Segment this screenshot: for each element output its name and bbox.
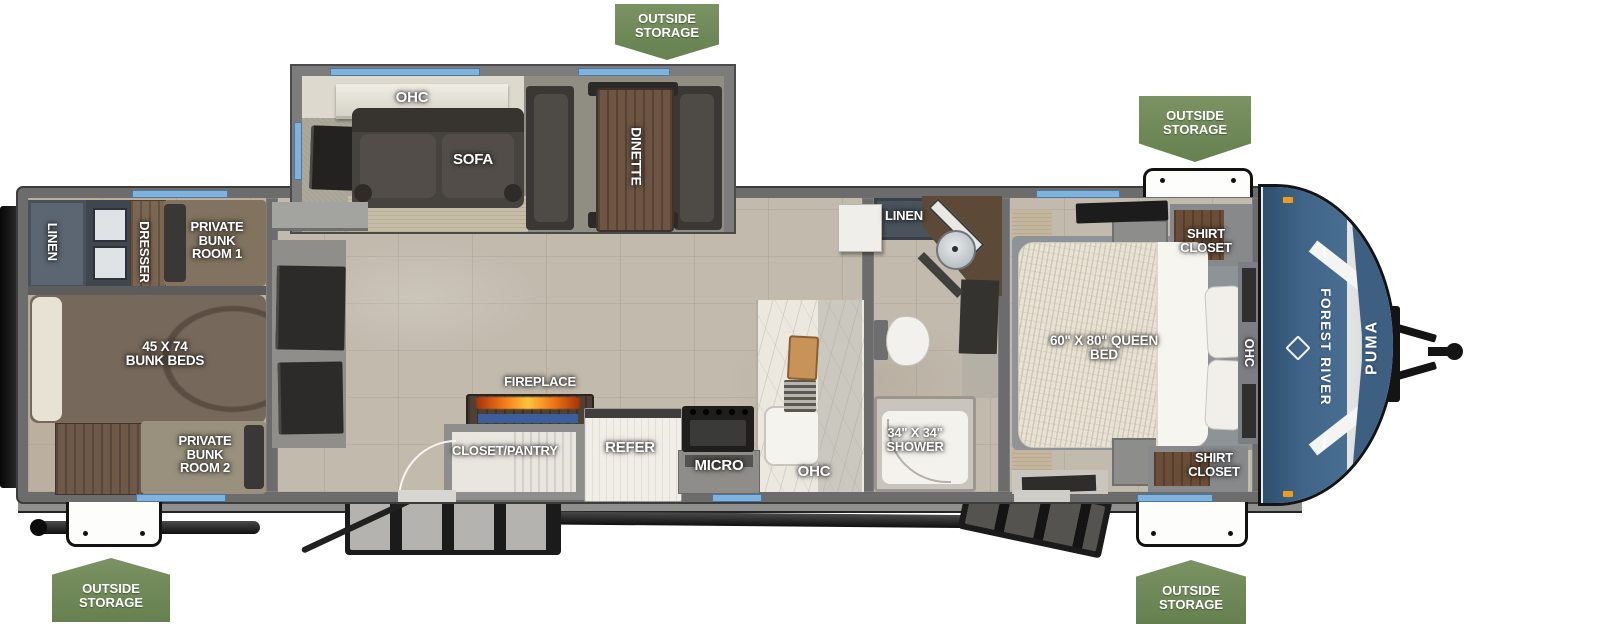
model-logo-text: PUMA — [1365, 297, 1382, 397]
rear-bumper — [0, 206, 20, 488]
rear-awning-tube-cap — [30, 519, 47, 536]
bedroom-window-top — [1036, 190, 1120, 198]
brand-dash — [1323, 247, 1326, 258]
refer-label: REFER — [596, 440, 664, 456]
entry-door2-threshold — [1014, 490, 1070, 502]
sofa-cushion — [360, 134, 436, 198]
outside-storage-badge-bottom-left: OUTSIDE STORAGE — [52, 558, 170, 622]
shower-label: 34" X 34" SHOWER — [869, 426, 961, 453]
sofa-armrest — [504, 184, 522, 202]
outside-storage-badge-top-right: OUTSIDE STORAGE — [1139, 96, 1251, 162]
ohc-bedroom-label: OHC — [1242, 331, 1256, 375]
range-knobs — [690, 409, 696, 415]
cabinet-pane — [93, 246, 127, 280]
tv-panel — [277, 361, 343, 434]
sofa-armrest — [354, 184, 372, 202]
cutting-board — [787, 335, 819, 381]
toilet — [874, 316, 928, 364]
bunk-room-2-base — [55, 423, 143, 495]
closet-pantry — [444, 424, 584, 500]
marker-light — [1283, 491, 1293, 497]
shirt-closet-bottom-label: SHIRT CLOSET — [1176, 451, 1252, 478]
tv-panel — [275, 265, 345, 350]
badge-label: OUTSIDE STORAGE — [71, 582, 151, 611]
entry-door-threshold — [398, 490, 456, 502]
fireplace-flame — [476, 397, 580, 409]
kitchen-window-bottom — [712, 494, 762, 502]
badge-label: OUTSIDE STORAGE — [1151, 584, 1231, 613]
bench-cushion — [680, 94, 714, 222]
dresser-label: DRESSER — [137, 214, 151, 290]
toilet-bowl — [886, 316, 930, 366]
micro-label: MICRO — [686, 458, 752, 474]
slide-window-left-top — [330, 68, 480, 76]
badge-label: OUTSIDE STORAGE — [1155, 109, 1235, 138]
marker-light — [1283, 197, 1293, 203]
sink-drain — [952, 246, 958, 252]
outside-storage-compartment-topright — [1143, 168, 1253, 197]
private-bunk-room-2-label: PRIVATE BUNK ROOM 2 — [170, 434, 240, 475]
latch-dot — [1231, 178, 1236, 183]
bath-sink — [936, 230, 976, 270]
bath-counter — [962, 354, 998, 398]
bunk-window-top — [132, 190, 228, 198]
shirt-closet-top-label: SHIRT CLOSET — [1168, 227, 1244, 254]
sofa-label: SOFA — [438, 152, 508, 168]
outside-storage-compartment-bottomleft — [66, 502, 162, 547]
front-cap: FOREST RIVER PUMA — [1258, 184, 1396, 506]
range-cooktop — [682, 406, 754, 452]
closet-pantry-label: CLOSET/PANTRY — [452, 444, 542, 458]
dinette-label: DINETTE — [629, 114, 644, 198]
linen-bath-label: LINEN — [876, 209, 932, 223]
pantry-louvers — [514, 432, 576, 492]
outside-storage-badge-bottom-right: OUTSIDE STORAGE — [1136, 560, 1246, 624]
bunk2-bolster — [244, 425, 264, 489]
badge-label: OUTSIDE STORAGE — [627, 12, 707, 41]
glass-cabinet — [86, 200, 130, 286]
dinette-bench — [674, 86, 722, 230]
hitch-coupler-ball — [1446, 343, 1463, 360]
entertainment-shelf — [272, 202, 368, 231]
ohc-kitchen-label: OHC — [788, 464, 840, 480]
outside-storage-badge-top-center: OUTSIDE STORAGE — [615, 4, 719, 60]
bunk-window-bottom — [136, 494, 226, 502]
range-grate — [690, 420, 746, 446]
kitchen-sink — [764, 406, 820, 466]
entry-steps-main — [345, 497, 561, 555]
step-treads — [350, 502, 556, 550]
bench-cushion — [534, 94, 568, 222]
bed-sheet — [1156, 242, 1208, 446]
slide-window-side — [294, 122, 302, 180]
queen-bed-label: 60" X 80" QUEEN BED — [1048, 334, 1160, 362]
bath-cabinet — [959, 279, 1000, 354]
outside-storage-compartment-bottomright — [1136, 502, 1248, 547]
latch-dot — [1228, 531, 1233, 536]
latch-dot — [140, 531, 145, 536]
bunk-beds-label: 45 X 74 BUNK BEDS — [122, 340, 208, 368]
latch-dot — [83, 531, 88, 536]
manufacturer-logo-text: FOREST RIVER — [1318, 262, 1332, 432]
ohc-slide-label: OHC — [380, 90, 444, 106]
cabinet-pane — [93, 208, 127, 242]
fireplace-label: FIREPLACE — [492, 375, 588, 389]
latch-dot — [1160, 178, 1165, 183]
dinette-bench — [526, 86, 574, 230]
slide-tv — [309, 125, 356, 191]
latch-dot — [1151, 531, 1156, 536]
dish-rack — [784, 380, 816, 412]
ohc-block — [1242, 268, 1256, 322]
fireplace-blue-trim — [478, 414, 578, 423]
bunk-pillow-roll — [32, 297, 62, 421]
sofa-back — [352, 108, 524, 132]
bunk1-bolster — [164, 204, 186, 282]
slide-window-right-top — [578, 68, 670, 76]
bedroom-tv — [1076, 200, 1169, 223]
ohc-block — [1242, 384, 1256, 438]
linen-rear-label: LINEN — [45, 212, 59, 272]
puma-floorplan: FOREST RIVER PUMA OUTSIDE STORAGE OUTSID… — [0, 0, 1600, 624]
brand-dash — [1323, 437, 1326, 448]
bedroom-window-bottom — [1137, 494, 1213, 502]
refer-top-edge — [585, 409, 681, 418]
private-bunk-room-1-label: PRIVATE BUNK ROOM 1 — [184, 220, 250, 261]
